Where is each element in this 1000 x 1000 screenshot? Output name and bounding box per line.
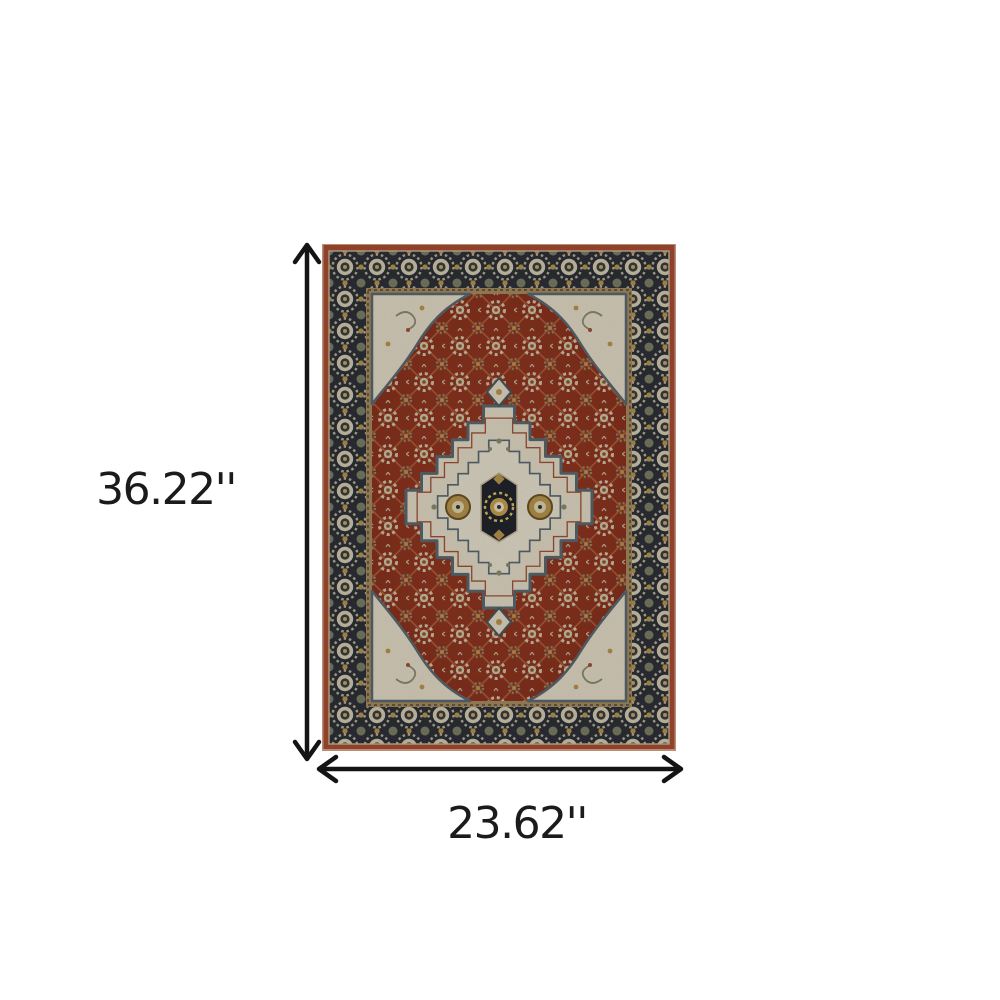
height-dimension-label: 36.22'' bbox=[60, 468, 272, 512]
width-dimension-label: 23.62'' bbox=[397, 802, 637, 846]
product-dimension-diagram: 36.22'' 23.62'' bbox=[0, 0, 1000, 1000]
vertical-dimension-arrow bbox=[295, 245, 319, 759]
horizontal-dimension-arrow bbox=[319, 757, 681, 781]
